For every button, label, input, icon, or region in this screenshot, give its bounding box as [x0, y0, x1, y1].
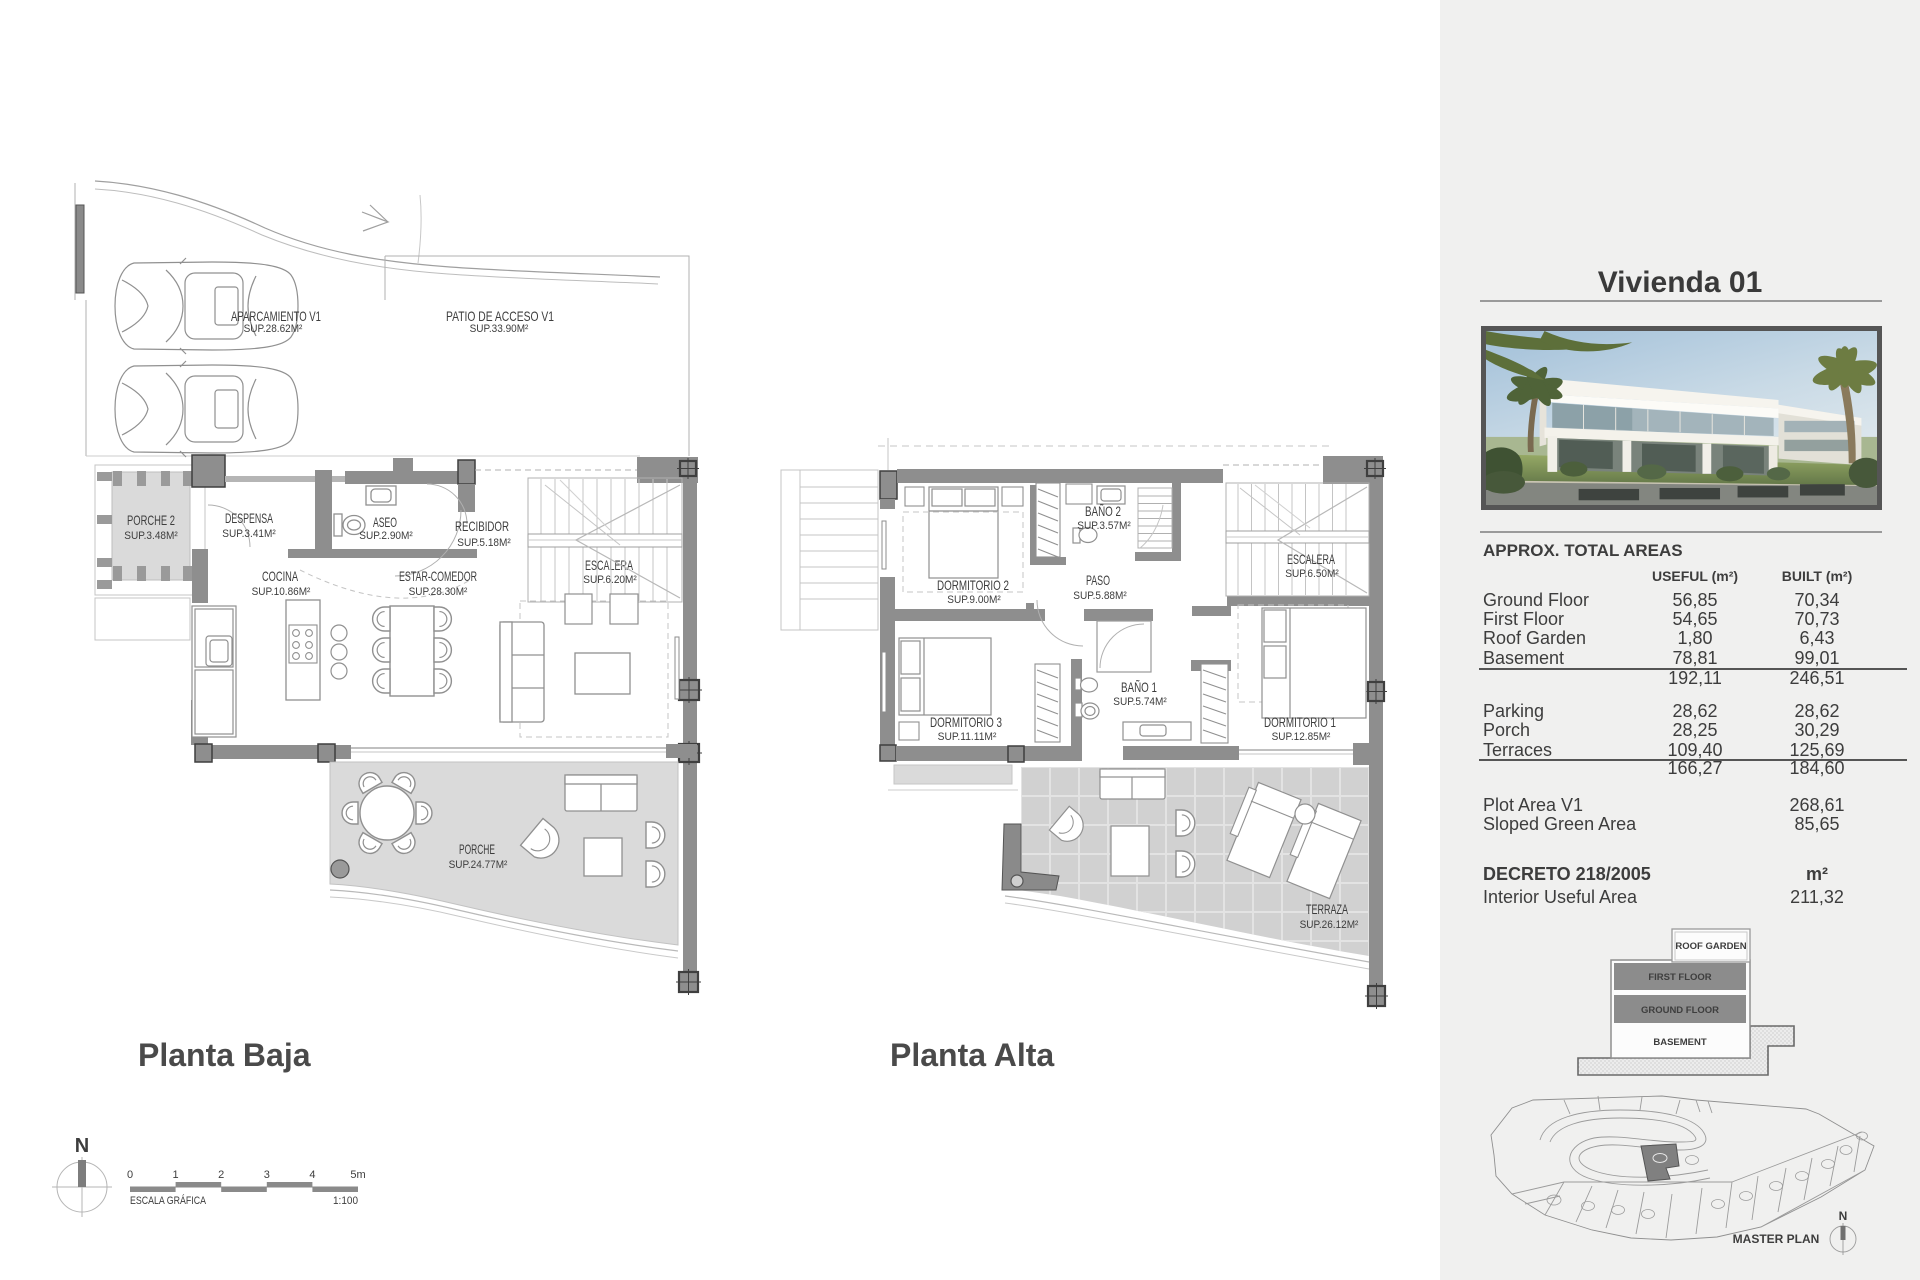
- svg-text:BAÑO 1: BAÑO 1: [1121, 679, 1157, 695]
- svg-text:PORCHE 2: PORCHE 2: [127, 512, 175, 528]
- svg-text:FIRST FLOOR: FIRST FLOOR: [1648, 972, 1711, 983]
- svg-text:MASTER PLAN: MASTER PLAN: [1733, 1232, 1820, 1246]
- svg-text:TERRAZA: TERRAZA: [1306, 901, 1348, 917]
- svg-text:DESPENSA: DESPENSA: [225, 510, 273, 526]
- svg-text:PORCHE: PORCHE: [459, 841, 495, 857]
- svg-text:ROOF GARDEN: ROOF GARDEN: [1675, 941, 1746, 952]
- svg-text:SUP.3.57M²: SUP.3.57M²: [1077, 520, 1131, 532]
- svg-text:PATIO DE ACCESO V1: PATIO DE ACCESO V1: [446, 308, 554, 324]
- svg-text:SUP.28.30M²: SUP.28.30M²: [409, 586, 468, 598]
- svg-text:DORMITORIO 2: DORMITORIO 2: [937, 577, 1009, 593]
- svg-text:SUP.3.48M²: SUP.3.48M²: [124, 530, 178, 542]
- svg-text:GROUND FLOOR: GROUND FLOOR: [1641, 1005, 1719, 1016]
- svg-text:5m: 5m: [350, 1169, 365, 1181]
- svg-text:SUP.6.20M²: SUP.6.20M²: [583, 574, 637, 586]
- svg-text:RECIBIDOR: RECIBIDOR: [455, 518, 509, 534]
- svg-text:0: 0: [127, 1169, 133, 1181]
- svg-text:Planta Baja: Planta Baja: [138, 1037, 311, 1073]
- svg-text:SUP.3.41M²: SUP.3.41M²: [222, 528, 276, 540]
- svg-text:SUP.5.88M²: SUP.5.88M²: [1073, 590, 1127, 602]
- svg-text:4: 4: [309, 1169, 315, 1181]
- svg-text:SUP.5.74M²: SUP.5.74M²: [1113, 696, 1167, 708]
- svg-text:SUP.12.85M²: SUP.12.85M²: [1272, 731, 1331, 743]
- svg-text:SUP.33.90M²: SUP.33.90M²: [470, 323, 529, 335]
- svg-text:DORMITORIO 1: DORMITORIO 1: [1264, 714, 1336, 730]
- svg-text:Planta Alta: Planta Alta: [890, 1037, 1054, 1073]
- svg-text:ESCALERA: ESCALERA: [1287, 551, 1335, 567]
- svg-text:2: 2: [218, 1169, 224, 1181]
- svg-text:SUP.2.90M²: SUP.2.90M²: [359, 530, 413, 542]
- svg-text:SUP.5.18M²: SUP.5.18M²: [457, 537, 511, 549]
- svg-text:3: 3: [264, 1169, 270, 1181]
- svg-text:PASO: PASO: [1086, 572, 1110, 588]
- svg-text:BAÑO 2: BAÑO 2: [1085, 503, 1121, 519]
- svg-text:ASEO: ASEO: [373, 514, 397, 530]
- svg-text:SUP.9.00M²: SUP.9.00M²: [947, 594, 1001, 606]
- svg-text:ESCALA GRÁFICA: ESCALA GRÁFICA: [130, 1194, 207, 1207]
- svg-text:SUP.6.50M²: SUP.6.50M²: [1285, 568, 1339, 580]
- svg-text:SUP.24.77M²: SUP.24.77M²: [449, 859, 508, 871]
- svg-text:SUP.10.86M²: SUP.10.86M²: [252, 586, 311, 598]
- svg-text:SUP.11.11M²: SUP.11.11M²: [938, 731, 997, 743]
- svg-text:N: N: [1839, 1209, 1848, 1223]
- svg-text:COCINA: COCINA: [262, 568, 298, 584]
- svg-text:N: N: [75, 1135, 89, 1157]
- svg-text:ESTAR-COMEDOR: ESTAR-COMEDOR: [399, 568, 477, 584]
- svg-text:SUP.28.62M²: SUP.28.62M²: [244, 323, 303, 335]
- svg-text:ESCALERA: ESCALERA: [585, 557, 633, 573]
- svg-text:1: 1: [173, 1169, 179, 1181]
- svg-text:1:100: 1:100: [333, 1195, 358, 1207]
- svg-text:BASEMENT: BASEMENT: [1653, 1037, 1707, 1048]
- svg-text:APARCAMIENTO V1: APARCAMIENTO V1: [231, 308, 321, 324]
- svg-text:SUP.26.12M²: SUP.26.12M²: [1300, 919, 1359, 931]
- svg-text:DORMITORIO 3: DORMITORIO 3: [930, 714, 1002, 730]
